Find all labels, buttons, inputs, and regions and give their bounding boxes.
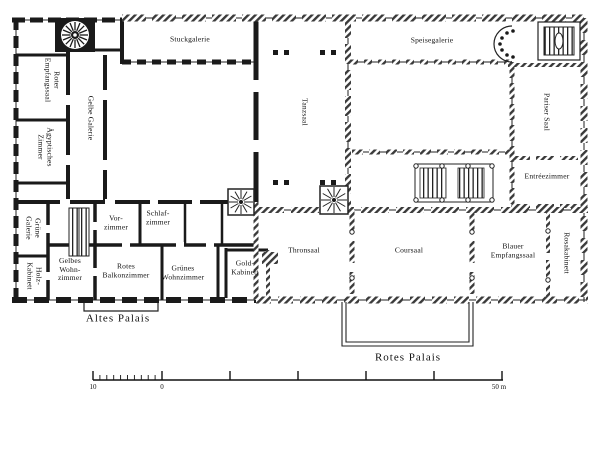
apse-colonnade-icon [494,26,515,62]
room-label-aegyptisches-zimmer: Ägyptisches Zimmer [36,127,53,166]
room-label-tanzsaal: Tanzsaal [300,98,309,126]
room-label-roter-empfangssaal: Roter Empfangssaal [43,58,60,102]
caption-rotes-palais: Rotes Palais [375,351,441,364]
room-label-gruenes-wohnzimmer: Grünes Wohnzimmer [162,264,205,281]
room-label-gelbes-wohnzimmer: Gelbes Wohn- zimmer [58,257,82,283]
room-label-vorzimmer: Vor- zimmer [104,214,128,231]
room-label-speisegalerie: Speisegalerie [411,37,454,46]
room-label-gold-kabinett: Gold- Kabinett [231,259,258,276]
scale-label-0: 0 [160,384,164,391]
scale-bar [93,371,503,380]
caption-altes-palais: Altes Palais [86,312,150,325]
floor-plan: Stuckgalerie Speisegalerie Tanzsaal Pari… [0,0,600,450]
altes-palais-bracket [84,303,158,311]
corner-staircase-icon [538,22,580,60]
room-label-rotes-balkonzimmer: Rotes Balkonzimmer [103,262,150,279]
room-label-pariser-saal: Pariser Saal [542,93,551,131]
room-label-holz-kabinett: Holz- Kabinett [25,262,42,289]
room-label-entreezimmer: Entréezimmer [525,173,570,182]
spiral-staircase-icon [320,186,348,214]
circular-staircase-icon [55,18,95,52]
room-label-stuckgalerie: Stuckgalerie [170,36,210,45]
spiral-staircase-icon [228,189,254,215]
grand-staircase-icon [414,164,494,202]
scale-label-50m: 50 m [492,384,506,391]
wall-chunk [262,252,278,264]
room-label-gelbe-galerie: Gelbe Galerie [86,96,95,140]
straight-staircase-icon [69,208,89,256]
room-label-rosakabinett: Rosakabinett [562,232,571,274]
room-label-thronsaal: Thronsaal [288,247,320,256]
scale-label-10: 10 [90,384,97,391]
room-label-coursaal: Coursaal [395,247,423,256]
terrace-outline [342,302,473,346]
room-label-schlafzimmer: Schlaf- zimmer [146,209,170,226]
room-label-blauer-empfangssaal: Blauer Empfangssaal [491,242,535,259]
room-label-gruene-galerie: Grüne Galerie [24,216,41,239]
